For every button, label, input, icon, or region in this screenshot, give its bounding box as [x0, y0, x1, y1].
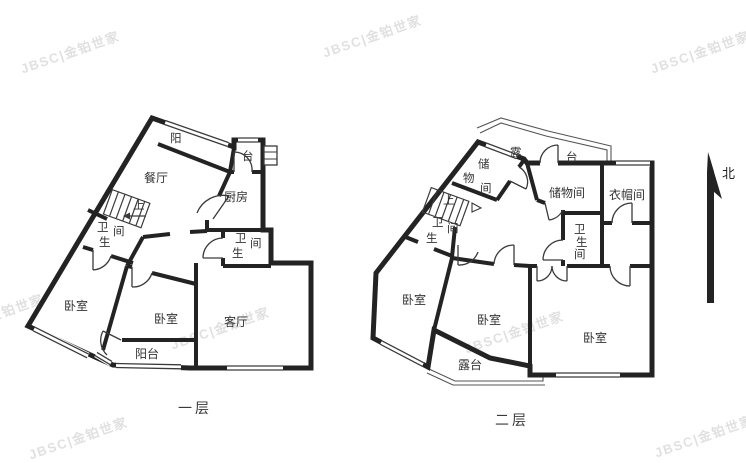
room-label-storage-big: 储物间: [549, 185, 585, 200]
room-label-closet: 衣帽间: [609, 187, 645, 202]
room-label-bath-west-c2: 生: [99, 235, 111, 249]
room-label-bath-mid-c2: 生: [576, 235, 588, 249]
room-label-bath-west-c1: 卫: [97, 222, 109, 234]
room-label-balcony-south: 阳台: [135, 346, 159, 361]
room-label-storage-small-c3: 间: [480, 182, 492, 195]
window: [380, 341, 424, 366]
room-label-terrace-south: 露台: [458, 357, 482, 372]
room-label-storage-small-c2: 物: [463, 171, 475, 185]
room-label-bedroom-mid: 卧室: [154, 311, 178, 326]
floor2-title: 二层: [495, 412, 529, 428]
floorplan-canvas: JBSC|金铂世家 JBSC|金铂世家 JBSC|金铂世家 JBSC|金铂世家 …: [0, 0, 746, 460]
door-arc: [93, 250, 111, 270]
room-label-kitchen: 厨房: [224, 189, 248, 204]
room-label-bedroom-west: 卧室: [64, 298, 88, 313]
window: [227, 366, 283, 370]
room-label-bath-east-c1: 卫: [235, 233, 247, 245]
stairs-up-label: 上: [443, 194, 455, 207]
room-label-balcony-north-1: 阳: [170, 132, 182, 145]
bay-window: [264, 146, 277, 165]
window: [616, 161, 650, 165]
room-label-dining: 餐厅: [144, 170, 168, 185]
room-label-bath-mid-c3: 间: [574, 248, 586, 261]
room-label-bath-east-c2: 生: [232, 246, 244, 260]
window: [556, 373, 620, 377]
door-arc: [132, 267, 152, 287]
terrace-outline-north: [477, 118, 611, 162]
floor2-outer-walls: [373, 142, 652, 375]
room-label-bath-east-c3: 间: [250, 237, 262, 250]
floor2-plan: 露 台 储 物 间 储物间 衣帽间 上 卫 间 生 卫 生 间 卧室 卧室 卧室…: [373, 118, 652, 428]
door-arc: [552, 266, 567, 281]
floorplan-drawing: 阳 台 餐厅 厨房 上 卫 间 生 卫 间 生 卧室 卧室 客厅 阳台 一层: [0, 0, 746, 460]
room-label-living: 客厅: [224, 314, 248, 329]
room-label-bedroom-west: 卧室: [402, 292, 426, 307]
stairs-direction-arrow: [123, 213, 146, 220]
door-arc: [203, 238, 223, 258]
door-arc: [510, 167, 528, 189]
room-label-bath-west-c3: 间: [447, 222, 459, 235]
floor1-plan: 阳 台 餐厅 厨房 上 卫 间 生 卫 间 生 卧室 卧室 客厅 阳台 一层: [28, 118, 311, 416]
door-arc: [543, 240, 563, 260]
door-arc: [610, 266, 630, 286]
room-label-bath-west-c1: 卫: [432, 217, 444, 229]
window: [238, 138, 258, 142]
door-arc: [537, 266, 552, 281]
floor1-title: 一层: [178, 400, 212, 416]
room-label-balcony-north-2: 台: [242, 149, 254, 163]
room-label-bath-west-c2: 生: [426, 231, 438, 245]
room-label-terrace-north-1: 露: [510, 146, 522, 159]
north-label: 北: [722, 166, 735, 181]
window: [116, 364, 181, 369]
window: [33, 327, 89, 358]
room-label-bath-mid-c1: 卫: [574, 224, 586, 236]
floor2-windows: [380, 143, 650, 377]
room-label-terrace-north-2: 台: [566, 150, 578, 164]
door-arc: [612, 203, 632, 223]
room-label-storage-small-c1: 储: [478, 157, 490, 171]
room-label-bedroom-mid: 卧室: [477, 312, 501, 327]
room-label-bedroom-east: 卧室: [583, 330, 607, 345]
north-arrow: 北: [707, 152, 735, 303]
stairs-direction-arrow: [472, 203, 481, 212]
door-arc: [494, 245, 514, 265]
terrace-outline-south: [427, 369, 545, 385]
door-arc: [545, 203, 563, 220]
room-label-bath-west-c3: 间: [113, 225, 125, 238]
stairs-up-label: 上: [133, 199, 145, 212]
